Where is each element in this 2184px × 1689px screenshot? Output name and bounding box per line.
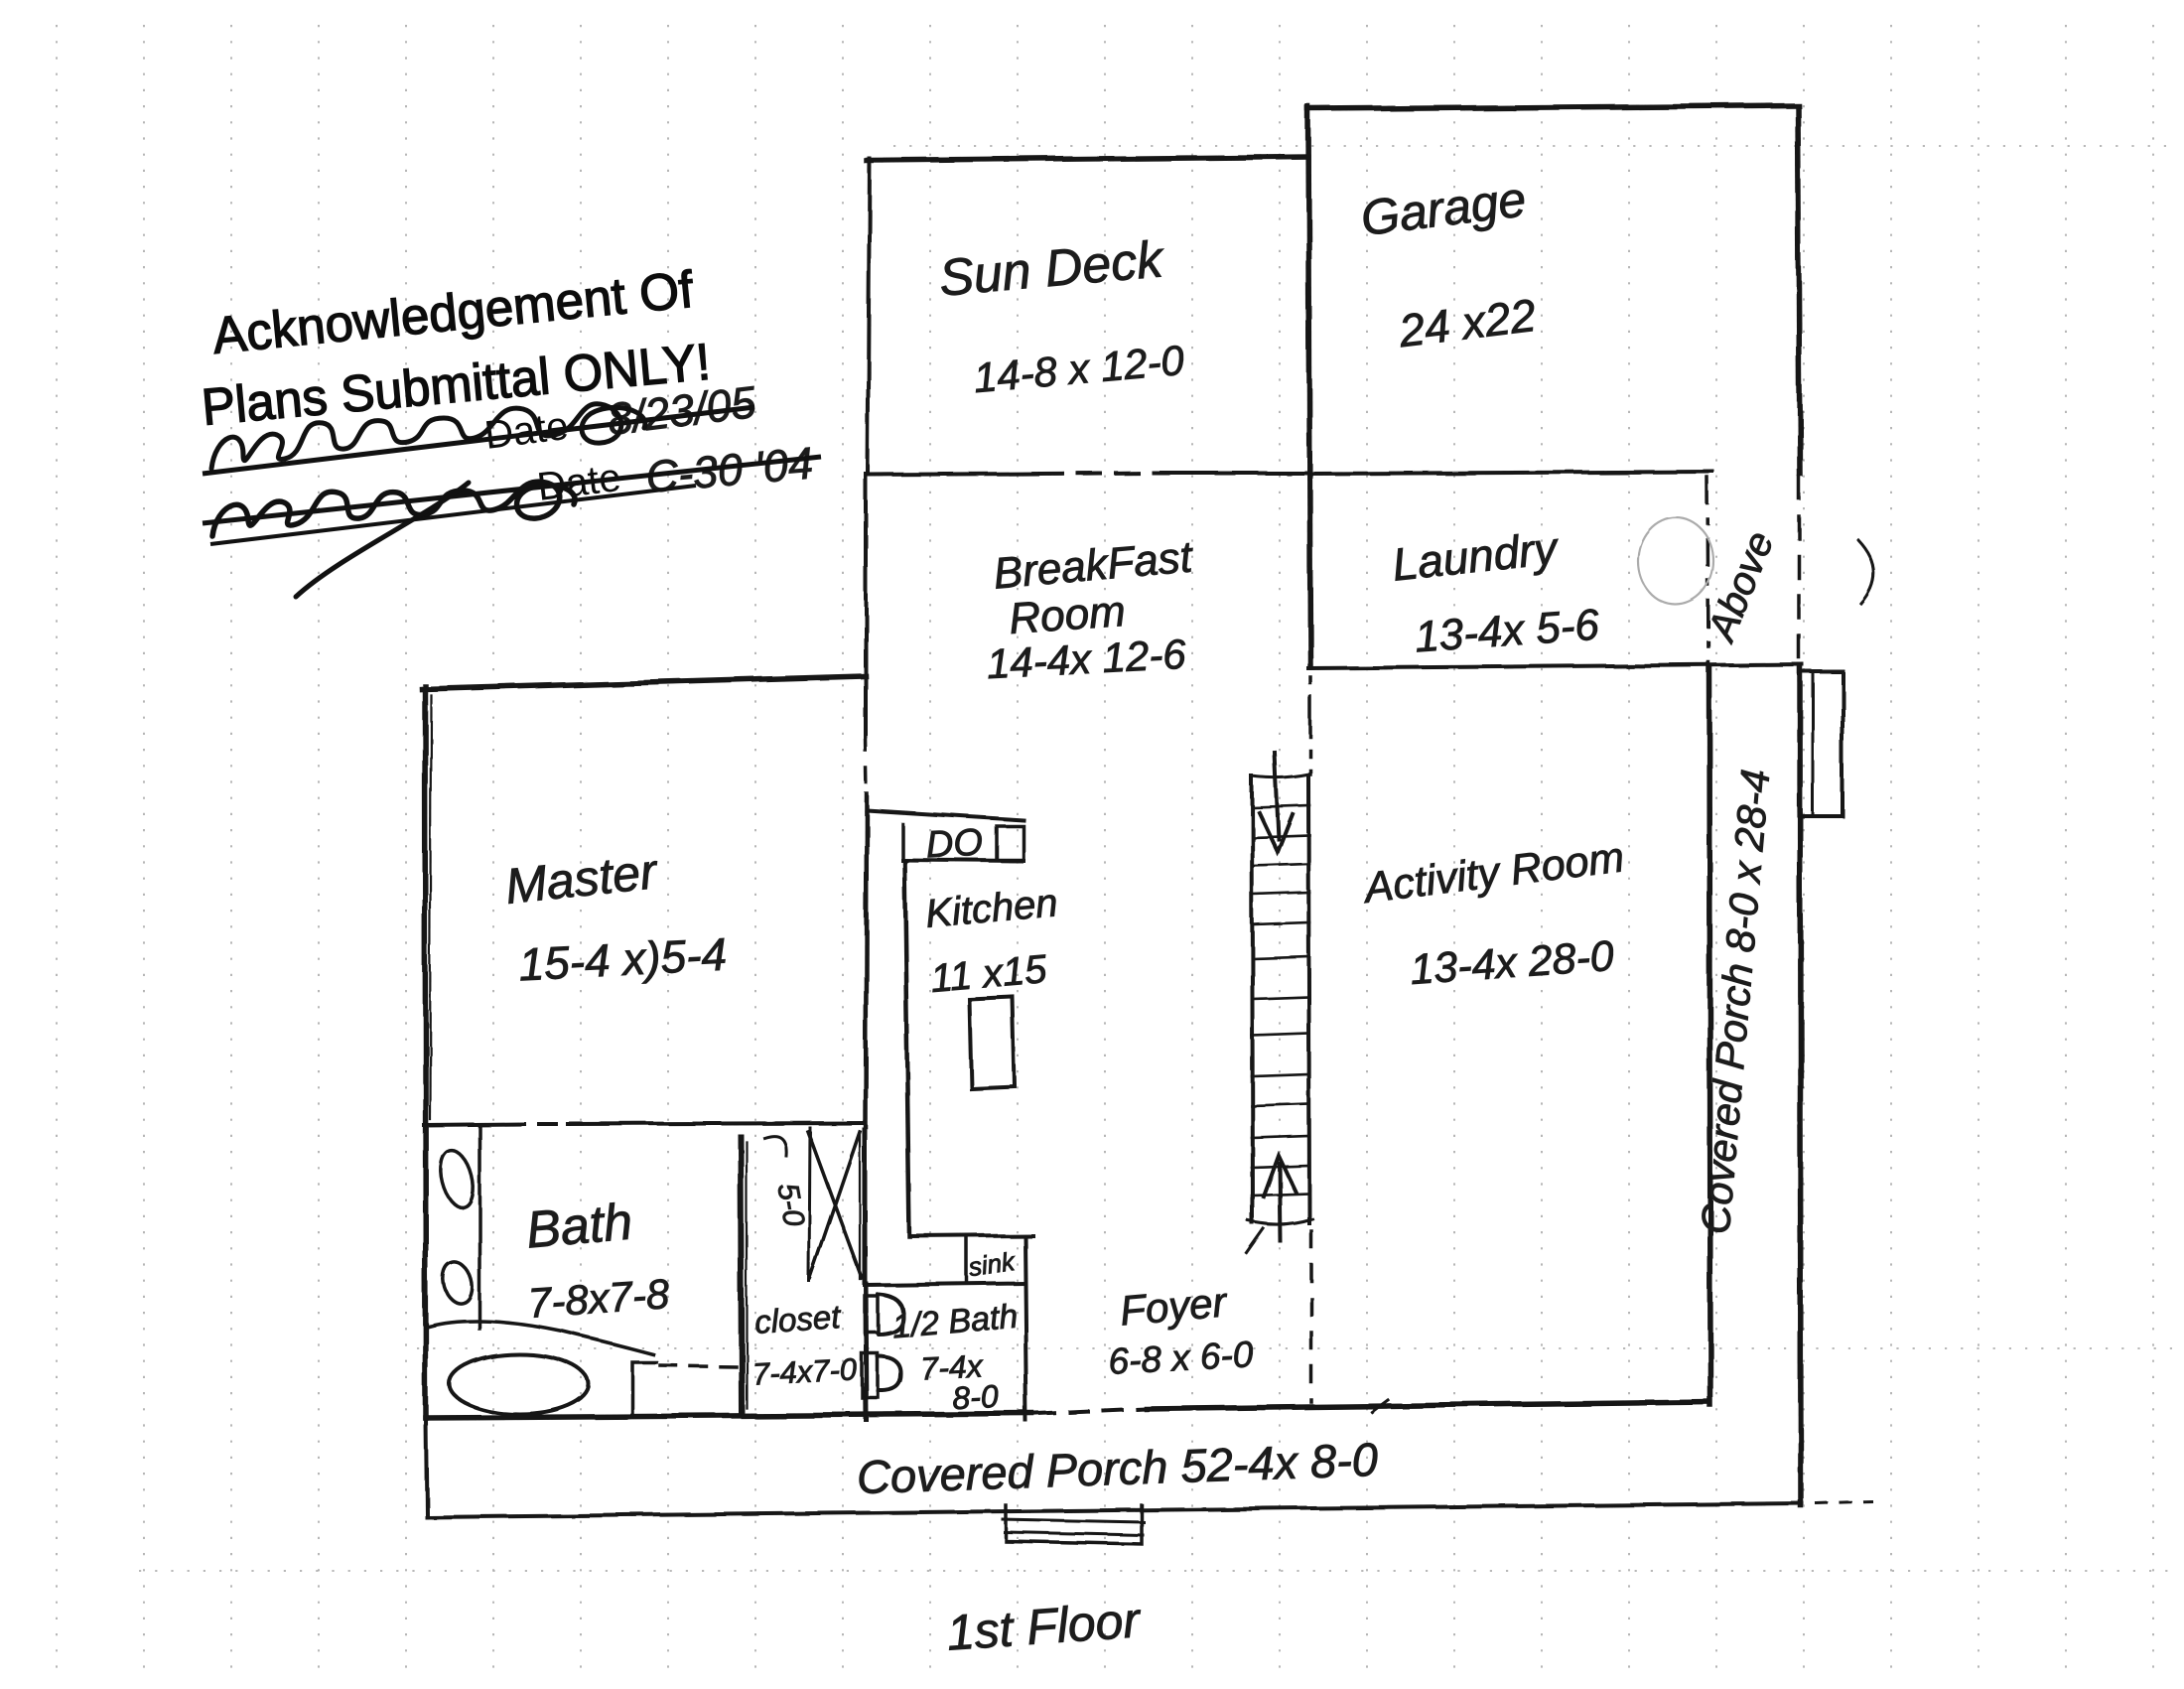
svg-text:7-8x7-8: 7-8x7-8 [526,1270,671,1327]
svg-text:DO: DO [925,822,984,867]
svg-text:15-4 x)5-4: 15-4 x)5-4 [517,928,728,991]
svg-text:closet: closet [753,1298,843,1340]
svg-text:Foyer: Foyer [1118,1278,1230,1334]
svg-text:8-0: 8-0 [951,1378,999,1416]
svg-text:Bath: Bath [524,1194,635,1260]
svg-text:6-8 x 6-0: 6-8 x 6-0 [1107,1334,1254,1382]
svg-text:7-4x7-0: 7-4x7-0 [751,1351,858,1391]
